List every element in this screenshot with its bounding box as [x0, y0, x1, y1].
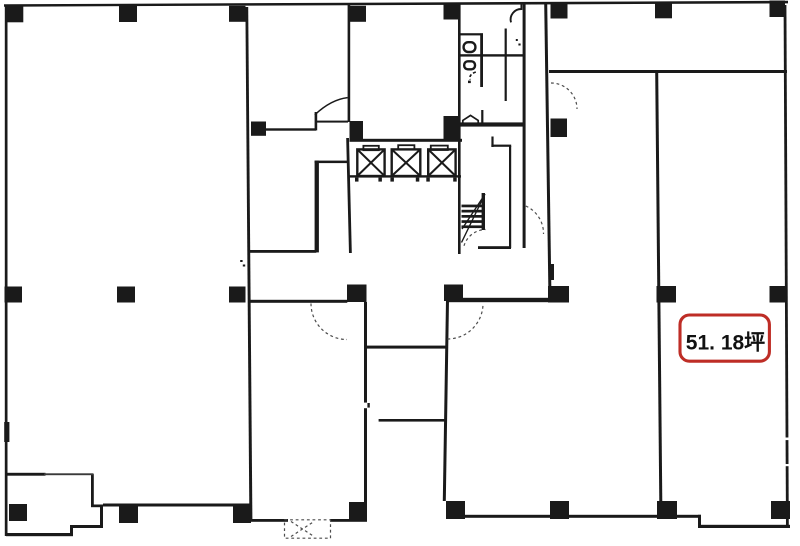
svg-text:51. 18坪: 51. 18坪: [686, 331, 765, 354]
